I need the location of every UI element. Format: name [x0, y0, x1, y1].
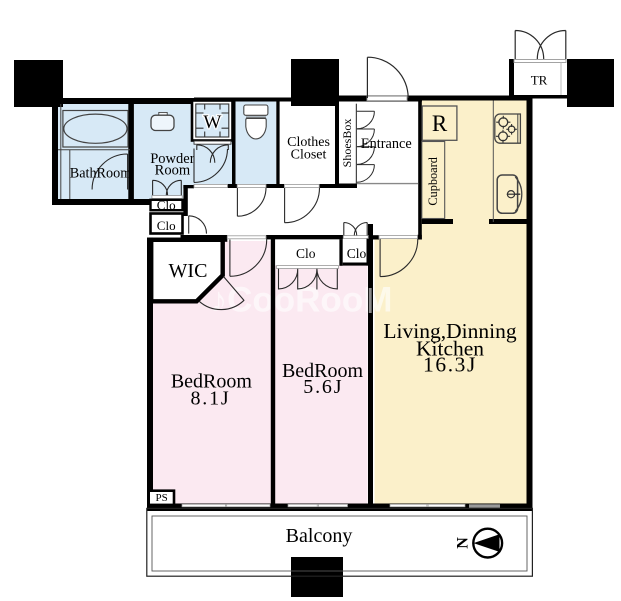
svg-text:Clo: Clo [296, 246, 316, 261]
svg-text:ShoesBox: ShoesBox [340, 119, 354, 168]
svg-text:16.3J: 16.3J [423, 352, 477, 376]
svg-text:Room: Room [155, 163, 191, 179]
svg-text:Clo: Clo [347, 246, 367, 261]
svg-text:BathRoom: BathRoom [70, 165, 131, 181]
svg-text:WIC: WIC [169, 260, 208, 282]
svg-text:Cupboard: Cupboard [426, 157, 440, 206]
svg-text:5.6J: 5.6J [303, 376, 343, 398]
svg-text:♪CooRooM: ♪CooRooM [210, 281, 393, 320]
svg-text:R: R [432, 111, 448, 136]
svg-text:PS: PS [155, 492, 167, 504]
svg-text:8.1J: 8.1J [191, 388, 231, 410]
svg-text:N: N [454, 537, 471, 549]
svg-text:Clo: Clo [157, 198, 176, 213]
svg-text:W: W [203, 112, 221, 133]
svg-text:TR: TR [531, 73, 548, 88]
svg-text:Closet: Closet [291, 147, 327, 162]
svg-text:Clo: Clo [157, 218, 176, 233]
svg-text:Balcony: Balcony [286, 525, 353, 547]
svg-text:Entrance: Entrance [361, 136, 412, 152]
